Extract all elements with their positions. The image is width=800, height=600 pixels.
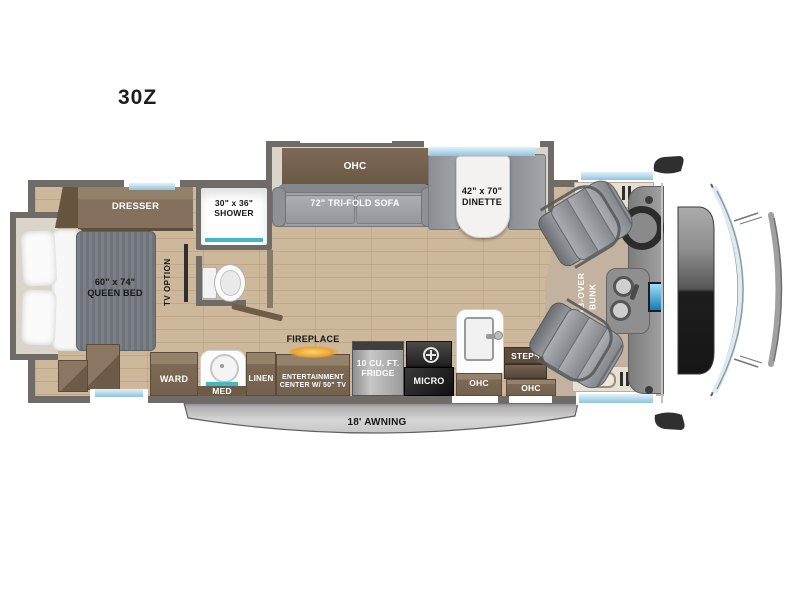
medicine-cabinet-label: MED (198, 386, 246, 396)
side-mirror-icon (654, 156, 684, 174)
sink-drain (220, 364, 224, 368)
door-vent-icon (620, 372, 623, 386)
floorplan-canvas: 30Z 18' AWNING DRESSER 60" x 74" QUEEN B… (0, 0, 800, 600)
passenger-door-window (579, 394, 653, 403)
windshield-glass (714, 187, 741, 393)
overhead-cabinet-label: OHC (282, 161, 428, 173)
refrigerator-top (353, 342, 403, 350)
toilet (202, 264, 244, 300)
window (95, 389, 143, 397)
dresser-label: DRESSER (78, 201, 193, 212)
entry-door-opening (452, 396, 498, 403)
cupholder-icon (610, 300, 631, 321)
pillow (21, 289, 57, 345)
linen-label: LINEN (244, 374, 278, 383)
vanity-sink (210, 354, 239, 383)
nightstand (58, 360, 88, 392)
window (300, 137, 392, 143)
entry-step-well (504, 364, 547, 379)
door-vent-icon (622, 186, 625, 200)
window (429, 147, 535, 156)
driver-door-window (581, 172, 653, 180)
fireplace-glow (288, 346, 338, 358)
hood (678, 207, 714, 374)
nightstand (86, 344, 120, 390)
bathroom-door-open (267, 250, 273, 308)
burner-icon (423, 347, 439, 363)
dinette-label: 42" x 70" DINETTE (452, 186, 512, 207)
toilet-seat (220, 270, 241, 296)
faucet-knob (494, 331, 503, 340)
wall-opening (509, 396, 552, 403)
fireplace-label: FIREPLACE (272, 334, 354, 345)
tv-option-mount (184, 244, 188, 302)
tv-option-label: TV OPTION (163, 240, 177, 306)
microwave-label: MICRO (404, 376, 454, 387)
shower-glass-accent (205, 238, 263, 242)
overhead-cabinet-label: OHC (506, 383, 556, 393)
pillow (21, 230, 58, 287)
sofa-armrest (272, 187, 286, 227)
window (129, 183, 175, 190)
shower-label: 30" x 36" SHOWER (198, 198, 270, 218)
side-mirror-icon (655, 413, 685, 431)
refrigerator-label: 10 CU. FT. FRIDGE (352, 358, 404, 378)
entertainment-center-label: ENTERTAINMENT CENTER W/ 50" TV (276, 374, 350, 391)
awning-label: 18' AWNING (317, 417, 437, 429)
model-number: 30Z (118, 86, 157, 110)
queen-bed-label: 60" x 74" QUEEN BED (72, 277, 158, 298)
overhead-cabinet-label: OHC (456, 378, 502, 388)
kitchen-sink-basin (464, 317, 494, 361)
cab-front-exterior (650, 135, 790, 435)
wardrobe-label: WARD (150, 374, 198, 385)
sofa-label: 72" TRI-FOLD SOFA (287, 198, 423, 209)
